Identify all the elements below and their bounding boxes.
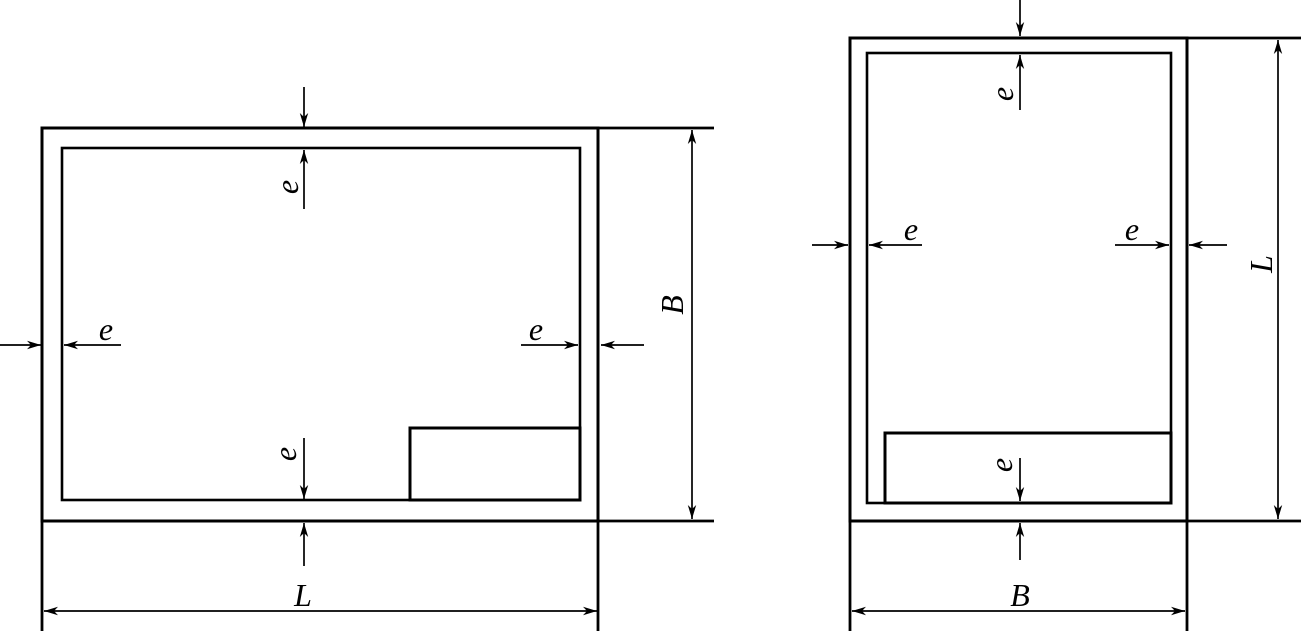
landscape-title-block xyxy=(410,428,580,500)
width-dim-label: L xyxy=(293,577,312,613)
height-dim-label: B xyxy=(654,295,690,315)
portrait-drawing-frame xyxy=(867,53,1171,503)
margin-label-left: e xyxy=(904,211,918,247)
margin-label-top: e xyxy=(269,180,305,194)
landscape-extension-lines xyxy=(42,128,714,631)
margin-label-bottom: e xyxy=(983,458,1019,472)
margin-label-bottom: e xyxy=(267,447,303,461)
landscape-overall-dimensions xyxy=(44,130,692,611)
portrait-title-block xyxy=(885,433,1171,503)
portrait-paper-outline xyxy=(850,38,1187,521)
portrait-overall-dimensions xyxy=(852,40,1278,611)
portrait-sheet-figure: e e e e L B xyxy=(812,0,1301,631)
sheet-format-diagram: e e e e B L xyxy=(0,0,1301,631)
width-dim-label: B xyxy=(1010,577,1030,613)
landscape-drawing-frame xyxy=(62,148,580,500)
landscape-margin-dimensions xyxy=(0,87,644,566)
margin-label-left: e xyxy=(99,311,113,347)
portrait-extension-lines xyxy=(850,38,1301,631)
figure-canvas: e e e e B L xyxy=(0,0,1301,631)
height-dim-label: L xyxy=(1243,255,1279,274)
margin-label-right: e xyxy=(529,311,543,347)
landscape-paper-outline xyxy=(42,128,598,521)
margin-label-top: e xyxy=(984,87,1020,101)
landscape-sheet-figure: e e e e B L xyxy=(0,87,714,631)
portrait-margin-dimensions xyxy=(812,0,1227,560)
margin-label-right: e xyxy=(1125,211,1139,247)
